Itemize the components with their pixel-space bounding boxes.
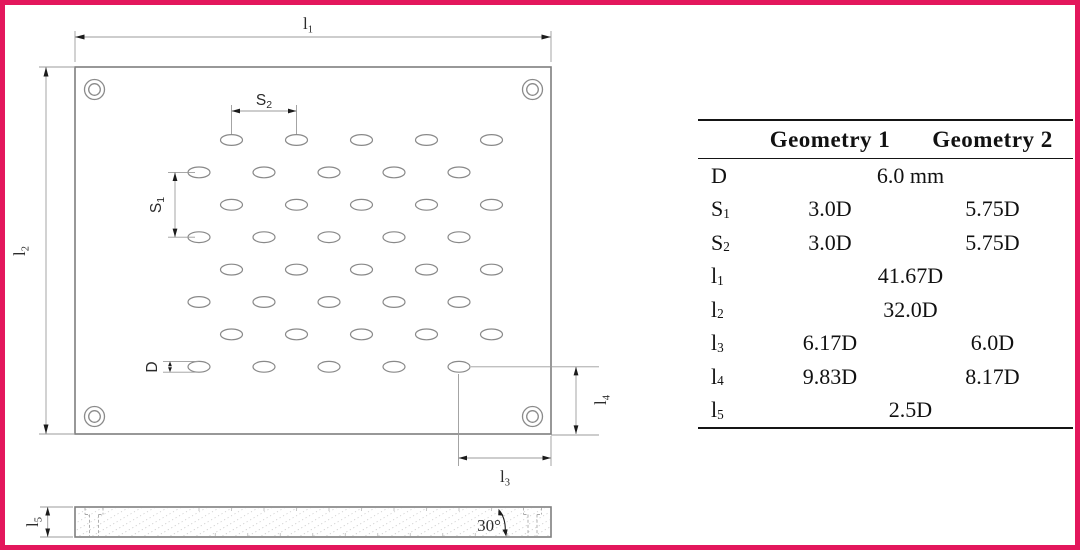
- hole-grid: [188, 135, 503, 373]
- l4-label: l4: [591, 394, 613, 405]
- row-label: l5: [698, 397, 748, 423]
- plate-top-view: [75, 67, 551, 434]
- hole-ellipse: [351, 135, 373, 146]
- hole-ellipse: [383, 167, 405, 178]
- header-geometry-1: Geometry 1: [748, 127, 912, 153]
- row-label: l4: [698, 364, 748, 390]
- row-label: l3: [698, 330, 748, 356]
- s1-label: S1: [148, 197, 167, 213]
- hole-ellipse: [286, 199, 308, 210]
- plate-side-view: 30° l5: [23, 502, 632, 542]
- hole-ellipse: [416, 264, 438, 275]
- hole-ellipse: [448, 297, 470, 308]
- corner-mounting-holes: [85, 80, 543, 427]
- hole-ellipse: [253, 232, 275, 243]
- technical-drawing: l1 l2 S2 S1 D: [5, 5, 665, 555]
- hole-ellipse: [383, 297, 405, 308]
- hole-ellipse: [221, 264, 243, 275]
- hole-ellipse: [286, 135, 308, 146]
- hole-ellipse: [481, 135, 503, 146]
- row-label: S1: [698, 196, 748, 222]
- row-value-geometry-2: 8.17D: [912, 364, 1073, 390]
- hole-ellipse: [448, 232, 470, 243]
- hole-ellipse: [383, 232, 405, 243]
- row-value-geometry-2: 5.75D: [912, 230, 1073, 256]
- angle-label: 30°: [477, 516, 501, 535]
- row-value-geometry-2: 6.0D: [912, 330, 1073, 356]
- row-value-geometry-2: 5.75D: [912, 196, 1073, 222]
- row-value-shared: 41.67D: [748, 263, 1073, 289]
- hole-ellipse: [253, 297, 275, 308]
- hole-ellipse: [286, 264, 308, 275]
- table-row: l5 2.5D: [698, 394, 1073, 428]
- hole-ellipse: [188, 361, 210, 372]
- hole-ellipse: [448, 167, 470, 178]
- l2-label: l2: [10, 246, 32, 256]
- hole-angle-annotation: 30°: [477, 509, 508, 537]
- dimension-l5: l5: [23, 507, 73, 537]
- hole-ellipse: [481, 329, 503, 340]
- table-row: D 6.0 mm: [698, 159, 1073, 193]
- s2-label: S2: [256, 92, 272, 111]
- row-label: D: [698, 163, 748, 189]
- hole-ellipse: [318, 232, 340, 243]
- row-label: l1: [698, 263, 748, 289]
- hole-ellipse: [286, 329, 308, 340]
- hole-ellipse: [351, 329, 373, 340]
- hole-ellipse: [416, 329, 438, 340]
- table-row: l2 32.0D: [698, 293, 1073, 327]
- table-row: S2 3.0D 5.75D: [698, 226, 1073, 260]
- hole-trace-ticks: [199, 508, 508, 536]
- row-value-geometry-1: 3.0D: [748, 196, 912, 222]
- hole-ellipse: [351, 199, 373, 210]
- row-value-geometry-1: 9.83D: [748, 364, 912, 390]
- geometry-table: Geometry 1 Geometry 2 D 6.0 mm S1 3.0D 5…: [698, 119, 1073, 429]
- hole-ellipse: [318, 167, 340, 178]
- dimension-l1: l1: [75, 14, 551, 62]
- dimension-l2: l2: [10, 67, 75, 434]
- page-frame: l1 l2 S2 S1 D: [0, 0, 1080, 550]
- table-header-row: Geometry 1 Geometry 2: [698, 121, 1073, 159]
- row-value-geometry-1: 6.17D: [748, 330, 912, 356]
- hole-ellipse: [448, 361, 470, 372]
- l1-label: l1: [303, 14, 313, 36]
- row-value-shared: 2.5D: [748, 397, 1073, 423]
- hole-ellipse: [416, 199, 438, 210]
- hole-ellipse: [221, 135, 243, 146]
- table-row: S1 3.0D 5.75D: [698, 193, 1073, 227]
- dimension-l3: l3: [459, 374, 552, 489]
- row-label: l2: [698, 297, 748, 323]
- hole-ellipse: [253, 361, 275, 372]
- l5-label: l5: [23, 517, 45, 527]
- header-geometry-2: Geometry 2: [912, 127, 1073, 153]
- hole-ellipse: [221, 329, 243, 340]
- hole-ellipse: [416, 135, 438, 146]
- row-label: S2: [698, 230, 748, 256]
- table-row: l1 41.67D: [698, 260, 1073, 294]
- hole-ellipse: [383, 361, 405, 372]
- dimension-s1: S1: [148, 172, 195, 237]
- row-value-shared: 6.0 mm: [748, 163, 1073, 189]
- hole-ellipse: [318, 297, 340, 308]
- row-value-geometry-1: 3.0D: [748, 230, 912, 256]
- dimension-s2: S2: [232, 92, 297, 134]
- hole-ellipse: [318, 361, 340, 372]
- hole-ellipse: [221, 199, 243, 210]
- hole-ellipse: [351, 264, 373, 275]
- d-label: D: [144, 361, 161, 372]
- row-value-shared: 32.0D: [748, 297, 1073, 323]
- hole-ellipse: [481, 264, 503, 275]
- dimension-l4: l4: [471, 367, 613, 435]
- hole-ellipse: [253, 167, 275, 178]
- table-row: l3 6.17D 6.0D: [698, 327, 1073, 361]
- hole-ellipse: [188, 297, 210, 308]
- table-row: l4 9.83D 8.17D: [698, 360, 1073, 394]
- l3-label: l3: [500, 467, 510, 489]
- hole-ellipse: [481, 199, 503, 210]
